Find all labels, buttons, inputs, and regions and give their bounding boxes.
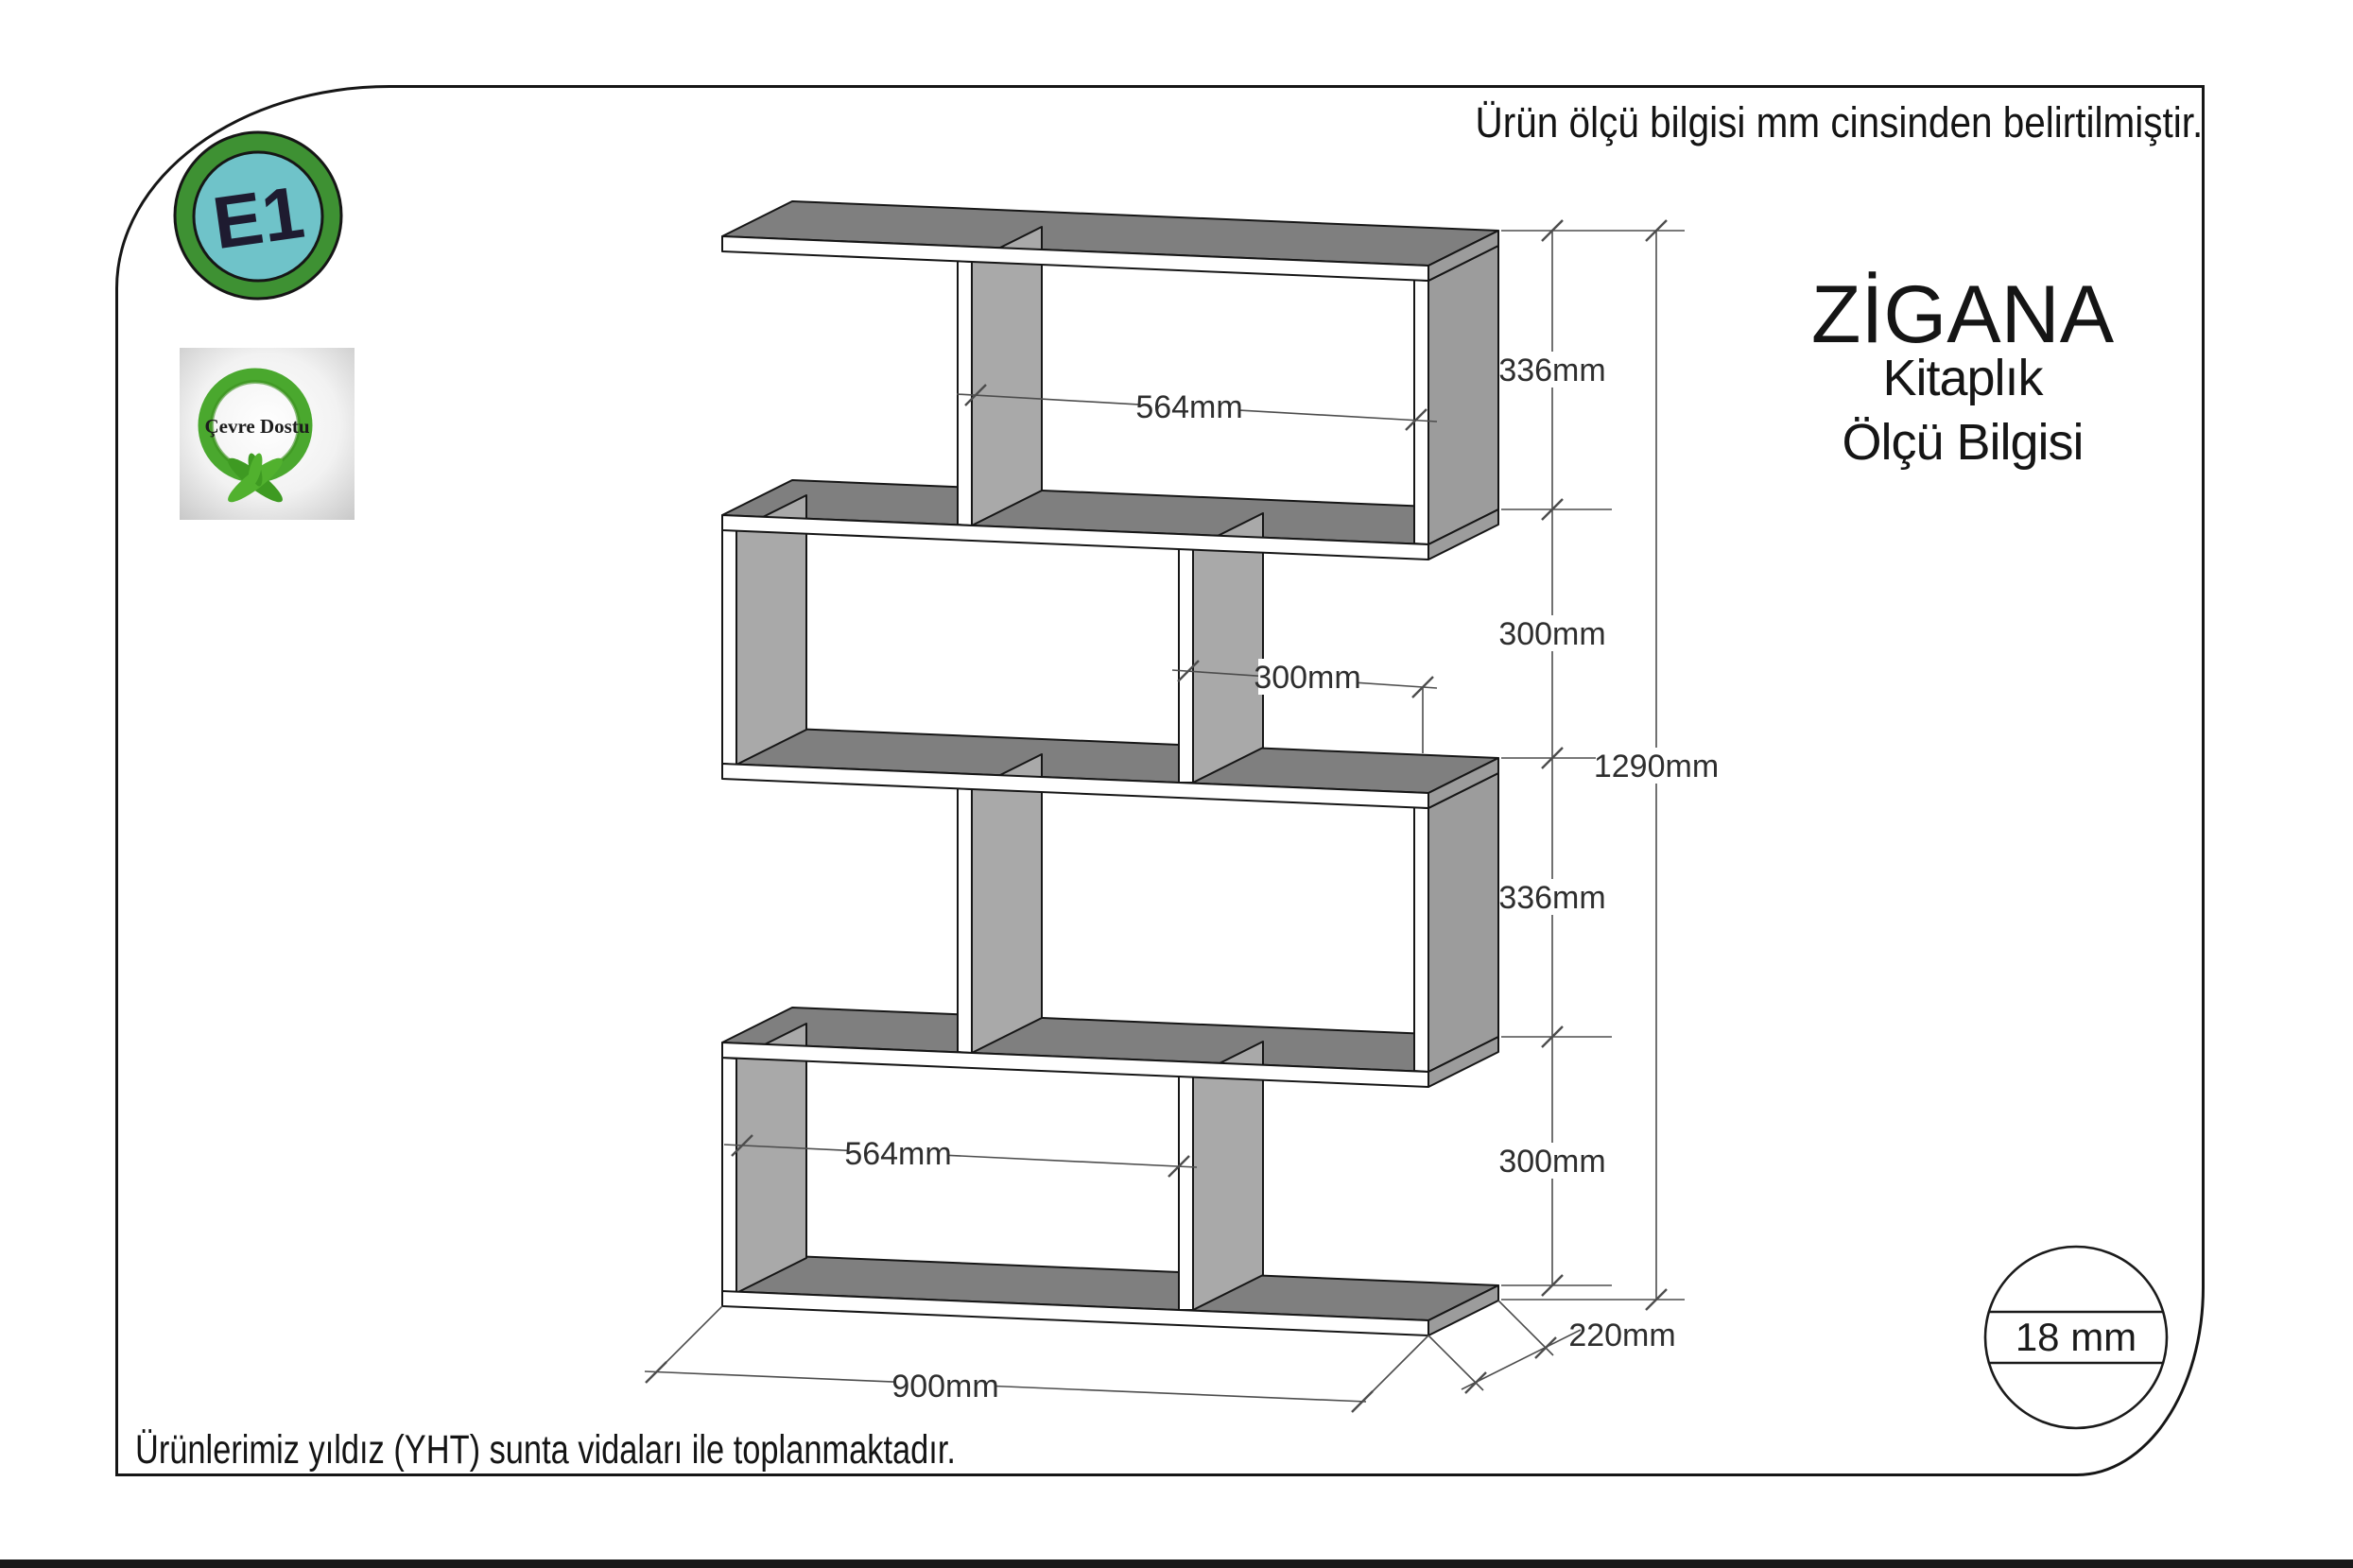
compartment-4-left-panel — [722, 1024, 806, 1293]
compartment-1-right-panel — [1414, 246, 1498, 544]
e1-label: E1 — [208, 170, 309, 265]
svg-text:336mm: 336mm — [1498, 353, 1605, 388]
dim-label-inner-mid: 300mm — [1254, 659, 1360, 696]
drawing-subtitle: Ölçü Bilgisi — [1842, 414, 2083, 471]
compartment-2-divider — [1179, 513, 1263, 783]
dim-label-seg1: 336mm — [1498, 352, 1605, 388]
svg-text:300mm: 300mm — [1498, 616, 1605, 652]
bookshelf-drawing — [722, 201, 1498, 1335]
compartment-2-left-panel — [722, 495, 806, 765]
dim-label-seg2: 300mm — [1498, 615, 1605, 652]
eco-logo: Çevre Dostu — [180, 348, 355, 520]
compartment-3-right-panel — [1414, 773, 1498, 1072]
dim-label-total-height: 1290mm — [1594, 748, 1719, 784]
compartment-4-divider — [1179, 1042, 1263, 1310]
page: Ürün ölçü bilgisi mm cinsinden belirtilm… — [0, 0, 2353, 1568]
svg-text:564mm: 564mm — [844, 1136, 951, 1172]
eco-label: Çevre Dostu — [204, 415, 309, 438]
svg-text:564mm: 564mm — [1135, 389, 1242, 425]
svg-text:336mm: 336mm — [1498, 880, 1605, 916]
dimension-drawing: E1 Çevre Dostu ZİGANA Kitaplık Ölçü Bilg… — [0, 0, 2353, 1568]
svg-text:300mm: 300mm — [1498, 1144, 1605, 1180]
title-block: ZİGANA Kitaplık Ölçü Bilgisi — [1811, 269, 2115, 471]
compartment-1-divider — [958, 227, 1042, 526]
dim-label-depth: 220mm — [1568, 1318, 1675, 1353]
dim-label-inner-top: 564mm — [1135, 388, 1242, 425]
dim-label-seg4: 300mm — [1498, 1143, 1605, 1180]
dim-label-width: 900mm — [891, 1368, 998, 1404]
product-name: ZİGANA — [1811, 269, 2115, 360]
svg-text:900mm: 900mm — [891, 1369, 998, 1404]
thickness-label: 18 mm — [2016, 1315, 2137, 1359]
total-height-dimension: 1290mm — [1594, 220, 1719, 1310]
board-top-faces — [722, 201, 1498, 1320]
e1-badge: E1 — [175, 132, 341, 299]
page-bottom-edge — [0, 1559, 2353, 1568]
svg-text:1290mm: 1290mm — [1594, 749, 1719, 784]
dim-label-seg3: 336mm — [1498, 879, 1605, 916]
product-type: Kitaplık — [1882, 350, 2044, 406]
compartment-3-divider — [958, 754, 1042, 1053]
thickness-symbol: 18 mm — [1985, 1247, 2167, 1428]
dim-label-inner-bottom: 564mm — [844, 1135, 951, 1172]
svg-text:300mm: 300mm — [1254, 660, 1360, 696]
